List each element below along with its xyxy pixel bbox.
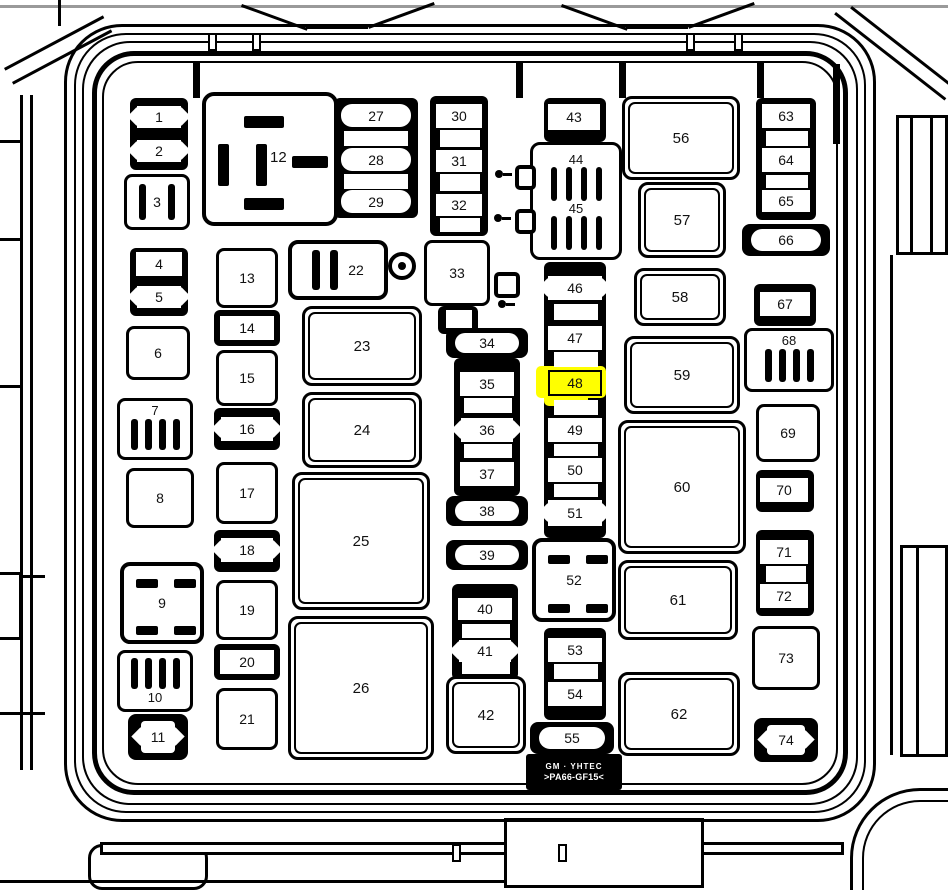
fuse-body: 38 [455,501,519,521]
fuse-body: 66 [751,229,821,251]
blank-slot [554,400,598,415]
fuse-55: 55 [530,722,614,754]
fuse-label: 55 [564,731,580,745]
background-line [0,238,20,241]
terminal-slot [793,349,800,382]
panel-divider [757,62,764,98]
fuse-label: 4 [155,257,163,271]
fuse-label: 33 [449,266,465,280]
terminal-slot [136,579,158,588]
background-line [0,140,20,143]
fuse-5: 5 [137,286,181,308]
fuse-38: 38 [446,496,528,526]
fuse-41: 41 [459,640,511,662]
blank-slot [462,624,510,638]
background-line [0,385,20,388]
fuse-label: 62 [671,707,688,722]
terminal-slot [581,216,587,250]
fuse-50: 50 [548,458,602,482]
background-line [0,5,948,8]
fuse-15: 15 [216,350,278,406]
terminal-connector [515,165,536,190]
fuse-label: 18 [239,543,255,557]
fuse-label: 71 [776,545,792,559]
terminal-slot [765,349,772,382]
blank-slot [554,304,598,320]
fuse-label: 63 [778,109,794,123]
fuse-6: 6 [126,326,190,380]
fuse-62: 62 [618,672,740,756]
fuse-label: 66 [778,233,794,247]
fuse-label: 34 [479,336,495,350]
relay-68: 68 [744,328,834,392]
fuse-label: 16 [239,422,255,436]
fuse-73: 73 [752,626,820,690]
fuse-40: 40 [458,598,512,620]
fuse-28: 28 [341,148,411,171]
terminal-slot [218,144,229,186]
blank-slot [440,130,480,147]
fuse-label: 13 [239,271,255,285]
mounting-tab [504,818,704,888]
fuse-label: 39 [479,548,495,562]
relay-9: 9 [120,562,204,644]
relay-22: 22 [288,240,388,300]
fuse-label: 20 [239,655,255,669]
fuse-body: 74 [767,725,805,755]
screw-symbol [498,300,515,308]
fuse-label: 9 [158,596,166,610]
blank-slot [554,352,598,367]
fuse-64: 64 [762,148,810,172]
fuse-label: 10 [148,691,162,704]
blank-slot [464,398,512,413]
fuse-label: 72 [776,589,792,603]
terminal-slot [173,419,180,450]
screw-symbol [495,170,512,178]
fuse-43: 43 [548,104,600,130]
fuse-label: 59 [674,368,691,383]
fuse-8: 8 [126,468,194,528]
blank-slot [766,131,808,146]
fuse-label: 45 [569,202,583,215]
fuse-label: 24 [354,423,371,438]
fuse-label: 37 [479,467,495,481]
fuse-24: 24 [302,392,422,468]
fuse-48: 48 [548,370,602,396]
fuse-21: 21 [216,688,278,750]
fuse-58: 58 [634,268,726,326]
relay-12: 12 [202,92,338,226]
fuse-53: 53 [548,638,602,662]
fuse-34: 34 [446,328,528,358]
terminal-slot [244,116,284,128]
fuse-label: 29 [368,195,384,209]
fuse-label: 3 [153,195,161,209]
terminal-slot [136,626,158,635]
blank-slot [766,175,808,188]
fuse-32: 32 [436,194,482,216]
fuse-23: 23 [302,306,422,386]
terminal-slot [145,419,152,450]
manufacturer-marking: GM · YHTEC >PA66-GF15< [526,754,622,790]
fuse-74: 74 [754,718,818,762]
fuse-label: 25 [353,534,370,549]
terminal-slot [292,156,328,168]
relay-44-45: 4445 [530,142,622,260]
blank-slot [344,131,408,146]
fuse-label: 35 [479,377,495,391]
terminal-slot-row [765,349,814,382]
fuse-57: 57 [638,182,726,258]
terminal-slot [551,167,557,201]
fuse-27: 27 [341,104,411,127]
fuse-label: 7 [151,404,158,417]
relay-10: 10 [117,650,193,712]
terminal-slot [168,184,175,220]
fuse-label: 61 [670,593,687,608]
fuse-56: 56 [622,96,740,180]
fuse-body: 39 [455,545,519,565]
fuse-label: 15 [239,371,255,385]
blank-slot [554,484,598,497]
background-line [890,255,893,755]
fuse-18: 18 [221,538,273,562]
fuse-label: 50 [567,463,583,477]
fuse-label: 52 [566,573,582,587]
fuse-label: 48 [567,376,583,390]
fuse-label: 2 [155,144,163,158]
terminal-slot [174,579,196,588]
terminal-slot [779,349,786,382]
fuse-label: 53 [567,643,583,657]
fuse-label: 43 [566,110,582,124]
fuse-31: 31 [436,150,482,172]
fuse-label: 1 [155,110,163,124]
fuse-body: 11 [141,721,175,753]
fuse-46: 46 [548,276,602,300]
fuse-label: 14 [239,321,255,335]
fuse-49: 49 [548,418,602,442]
blank-slot [554,664,598,679]
fuse-1: 1 [137,106,181,128]
terminal-slot [131,419,138,450]
fuse-label: 36 [479,423,495,437]
fuse-label: 47 [567,331,583,345]
terminal-slot [159,658,166,689]
fuse-47: 47 [548,326,602,350]
terminal-slot [256,144,267,186]
fuse-label: 49 [567,423,583,437]
terminal-slot [131,658,138,689]
fuse-25: 25 [292,472,430,610]
marking-line2: >PA66-GF15< [544,772,604,783]
fuse-label: 11 [151,730,166,744]
fuse-35: 35 [460,372,514,396]
fuse-69: 69 [756,404,820,462]
fuse-63: 63 [762,104,810,128]
terminal-slot [596,216,602,250]
blank-slot [440,174,480,191]
fuse-label: 12 [270,150,287,165]
fuse-16: 16 [221,417,273,441]
fuse-label: 70 [776,483,792,497]
fuse-label: 56 [673,131,690,146]
terminal-slot [581,167,587,201]
panel-divider [833,64,840,144]
screw-symbol [494,214,511,222]
background-line [930,118,933,252]
fuse-19: 19 [216,580,278,640]
fuse-67: 67 [760,292,810,316]
panel-divider [193,62,200,98]
blank-slot [446,310,472,328]
fuse-label: 8 [156,491,164,505]
fuse-label: 27 [368,109,384,123]
fuse-label: 23 [354,339,371,354]
fuse-label: 19 [239,603,255,617]
terminal-slot-row [131,419,180,450]
blank-slot [554,444,598,456]
fuse-label: 73 [778,651,794,665]
terminal-slot [566,216,572,250]
fuse-37: 37 [460,462,514,486]
terminal-slot [548,604,570,613]
mounting-bracket [900,545,948,757]
blank-slot [766,566,806,582]
fuse-29: 29 [341,190,411,213]
terminal-connector [515,209,536,234]
fuse-label: 41 [477,644,493,658]
fuse-label: 31 [451,154,467,168]
frame-tab [686,33,695,51]
relay-7: 7 [117,398,193,460]
fuse-label: 40 [477,602,493,616]
fuse-20: 20 [220,650,274,674]
fuse-label: 60 [674,480,691,495]
fuse-11: 11 [128,714,188,760]
fuse-label: 22 [348,263,364,277]
fuse-label: 17 [239,486,255,500]
terminal-slot [548,555,570,564]
terminal-slot-row [131,658,180,689]
terminal-slot [586,555,608,564]
fuse-label: 46 [567,281,583,295]
fuse-label: 5 [155,290,163,304]
terminal-slot [551,216,557,250]
bolt-hole-center [398,262,406,270]
fuse-65: 65 [762,190,810,212]
fuse-box-diagram: GM · YHTEC >PA66-GF15< 12345678910111213… [0,0,948,890]
fuse-66: 66 [742,224,830,256]
background-line [910,118,913,252]
bottom-bar [100,842,844,855]
relay-52: 52 [532,538,616,622]
fuse-60: 60 [618,420,746,554]
mounting-tab [0,572,22,640]
terminal-slot [159,419,166,450]
terminal-slot [312,250,320,290]
terminal-slot-row [551,167,602,201]
frame-tab [452,844,461,862]
fuse-26: 26 [288,616,434,760]
fuse-label: 38 [479,504,495,518]
fuse-label: 58 [672,290,689,305]
frame-tab [558,844,567,862]
fuse-71: 71 [760,540,808,564]
fuse-label: 69 [780,426,796,440]
fuse-body: 34 [455,333,519,353]
fuse-42: 42 [446,676,526,754]
fuse-label: 32 [451,198,467,212]
terminal-slot [173,658,180,689]
terminal-slot [566,167,572,201]
blank-slot [462,662,510,674]
fuse-label: 51 [567,506,583,520]
terminal-slot [330,250,338,290]
mounting-bracket [896,115,948,255]
terminal-slot [145,658,152,689]
background-line [30,95,33,770]
fuse-33: 33 [424,240,490,306]
frame-tab [208,33,217,51]
background-line [916,548,919,754]
fuse-30: 30 [436,104,482,128]
fuse-51: 51 [548,500,602,526]
blank-slot [464,444,512,458]
relay-3: 3 [124,174,190,230]
panel-divider [516,62,523,98]
blank-slot [344,174,408,189]
terminal-slot [139,184,146,220]
fuse-2: 2 [137,140,181,162]
terminal-slot [596,167,602,201]
fuse-label: 30 [451,109,467,123]
fuse-label: 6 [154,346,162,360]
background-line [20,95,23,770]
terminal-connector [494,272,520,298]
fuse-label: 74 [778,733,794,747]
fuse-13: 13 [216,248,278,308]
fuse-label: 57 [674,213,691,228]
fuse-label: 44 [569,153,583,166]
terminal-slot [586,604,608,613]
frame-tab [734,33,743,51]
fuse-label: 28 [368,153,384,167]
fuse-label: 65 [778,194,794,208]
terminal-slot-row [551,216,602,250]
fuse-14: 14 [220,316,274,340]
fuse-61: 61 [618,560,738,640]
background-line [58,0,61,26]
fuse-70: 70 [760,478,808,502]
frame-tab [252,33,261,51]
panel-divider [619,62,626,98]
terminal-slot [807,349,814,382]
fuse-label: 26 [353,681,370,696]
marking-line1: GM · YHTEC [546,761,603,772]
terminal-slot [174,626,196,635]
fuse-4: 4 [136,252,182,276]
fuse-59: 59 [624,336,740,414]
terminal-slot [244,198,284,210]
fuse-label: 67 [777,297,793,311]
fuse-label: 68 [782,334,796,347]
fuse-72: 72 [760,584,808,608]
fuse-17: 17 [216,462,278,524]
background-line [0,880,506,883]
fuse-39: 39 [446,540,528,570]
fuse-label: 42 [478,708,495,723]
fuse-label: 54 [567,687,583,701]
fuse-label: 21 [239,712,255,726]
fuse-54: 54 [548,682,602,706]
fuse-label: 64 [778,153,794,167]
blank-slot [440,218,480,232]
bolt-hole [388,252,416,280]
fuse-body: 55 [539,727,605,749]
fuse-36: 36 [461,418,513,442]
